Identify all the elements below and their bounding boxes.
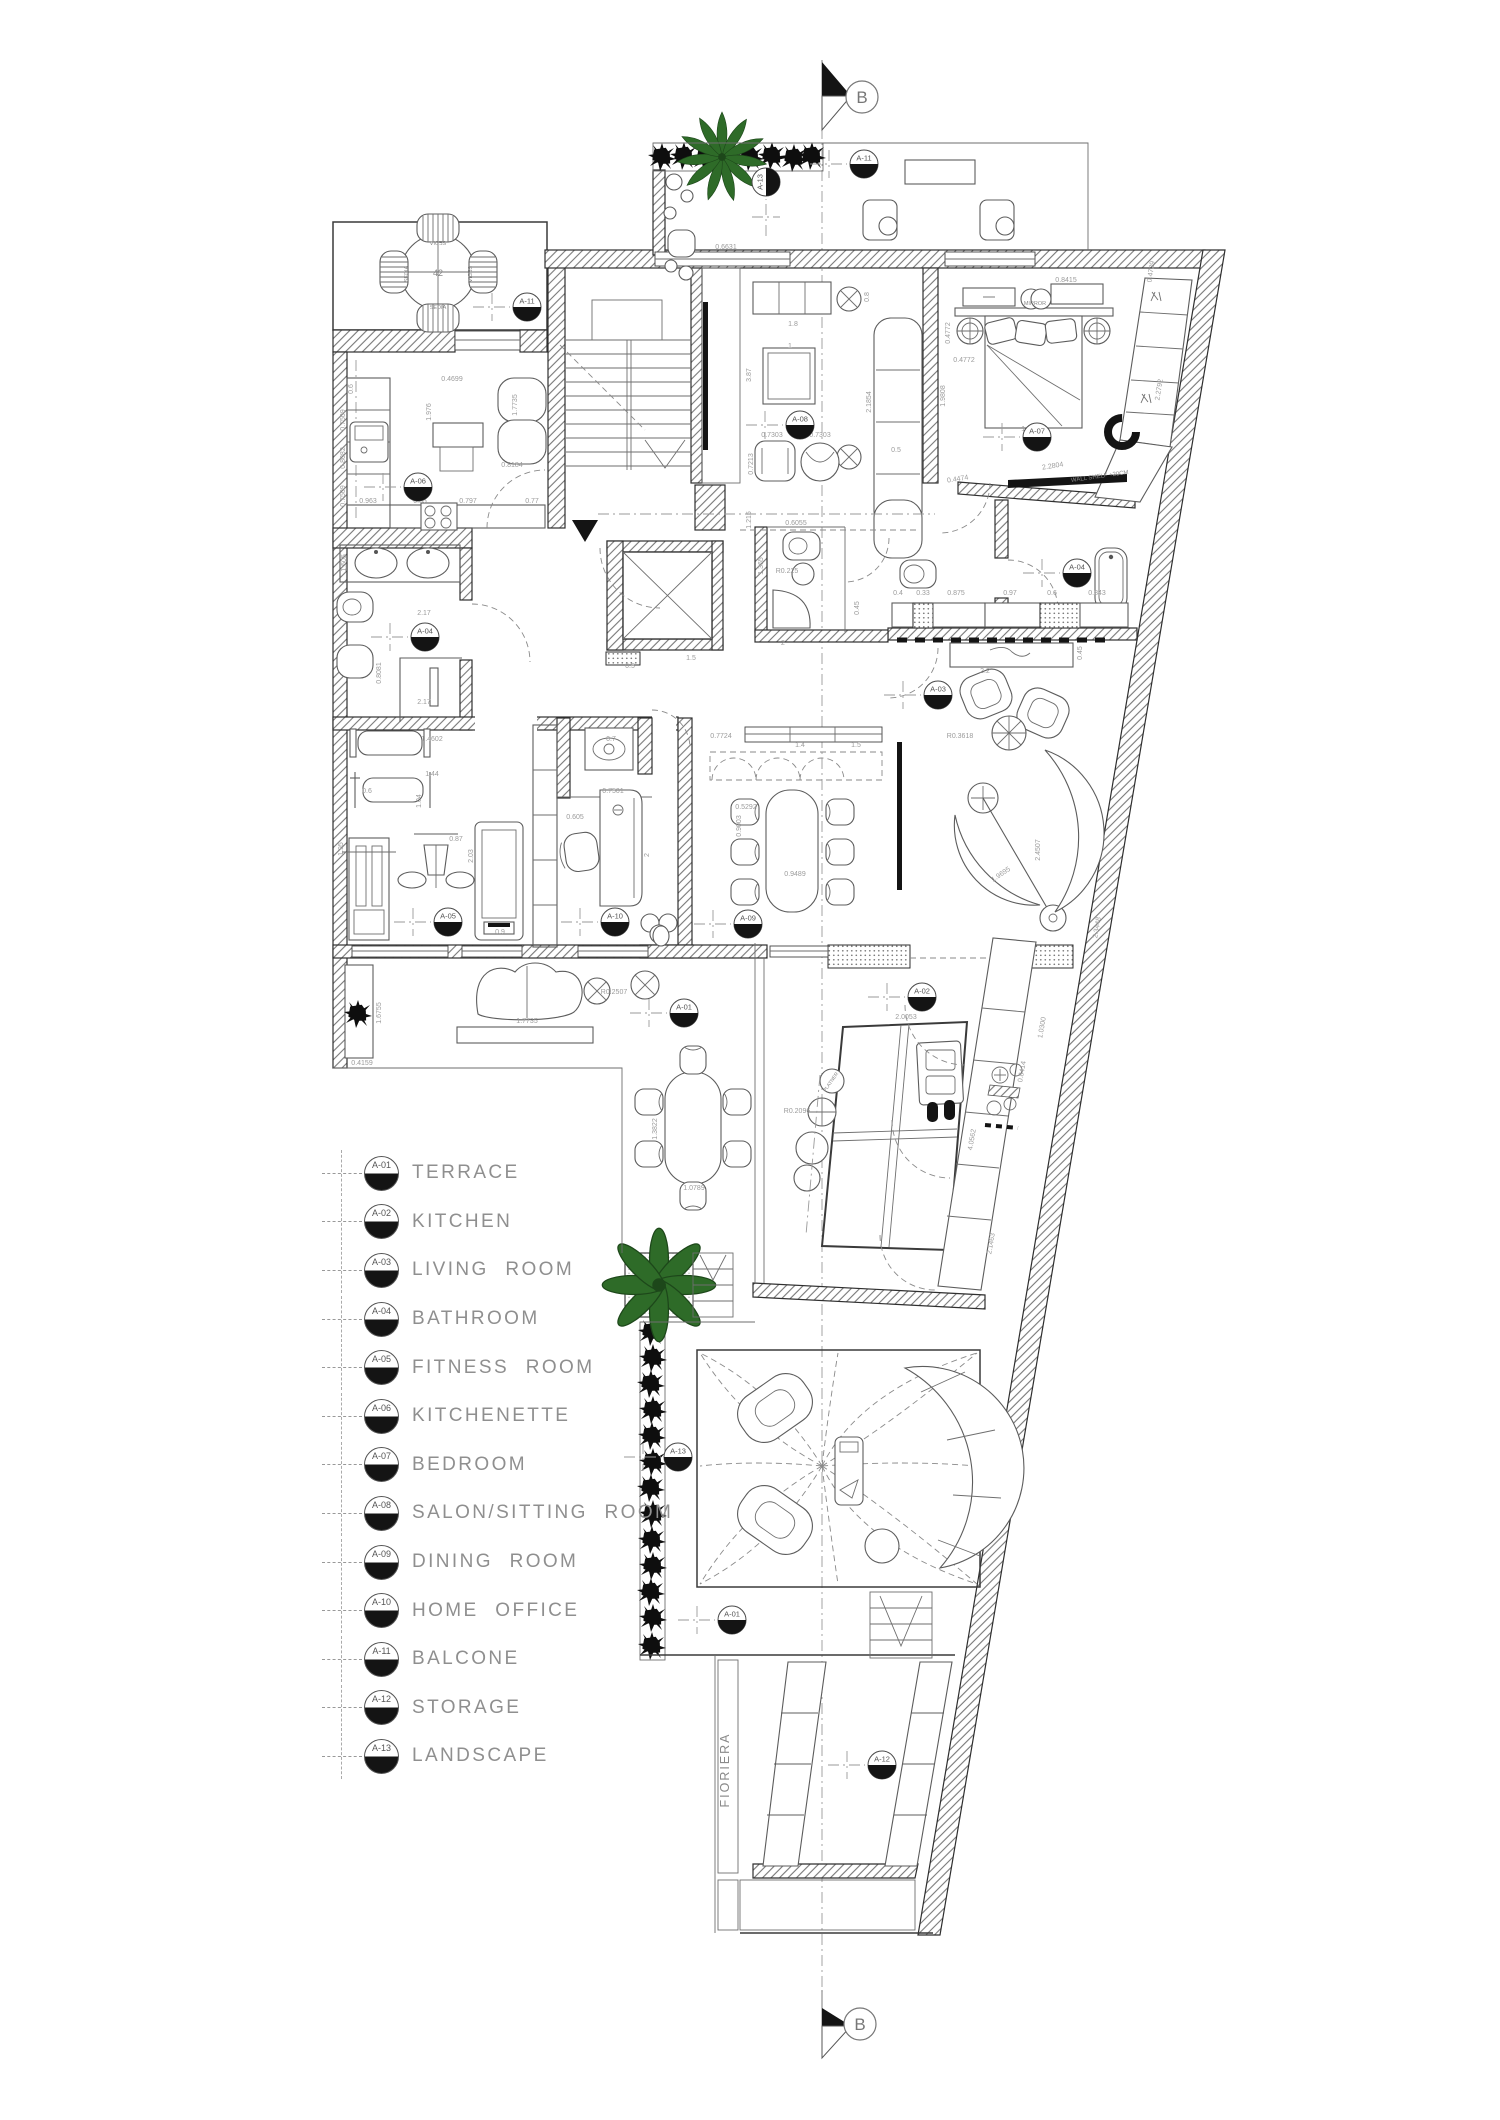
legend-item: A-12 STORAGE (322, 1684, 673, 1733)
dimension-label: 1.5 (686, 655, 696, 662)
legend-label: SALON/SITTING ROOM (412, 1502, 673, 1524)
legend-marker-icon: A-12 (364, 1690, 399, 1725)
legend-dash-icon (322, 1610, 362, 1611)
salon-sofa (874, 318, 922, 558)
legend-item: A-01 TERRACE (322, 1149, 673, 1198)
storage-cabinet (763, 1662, 826, 1866)
side-table (837, 445, 861, 469)
room-marker: A-01 (630, 999, 698, 1027)
entry-arrow-icon (572, 520, 598, 542)
stairs-terrace (870, 1592, 932, 1658)
dimension-label: 0.45 (1077, 646, 1084, 660)
dimension-label: 0.4159 (351, 1060, 373, 1067)
legend-label: HOME OFFICE (412, 1600, 579, 1622)
room-marker: A-10 (561, 908, 629, 936)
dimension-label: 0.6 (1047, 590, 1057, 597)
legend-item: A-13 LANDSCAPE (322, 1732, 673, 1781)
legend-item: A-11 BALCONE (322, 1635, 673, 1684)
terrace-chair (980, 200, 1014, 240)
room-marker-id: A-13 (756, 174, 765, 190)
dimension-label: 2.03 (468, 849, 475, 863)
toilet-icon (337, 645, 373, 678)
dimension-label: 0.9003 (736, 815, 743, 837)
room-marker-id: A-10 (607, 912, 623, 921)
dimension-label: 0.7501 (602, 788, 624, 795)
dimension-label: 0.8 (864, 292, 871, 302)
legend-tick-icon (341, 1685, 342, 1731)
dimension-label: 1.3822 (652, 1118, 659, 1140)
legend-marker-id: A-09 (365, 1549, 398, 1559)
legend-label: FITNESS ROOM (412, 1357, 594, 1379)
stove-icon (421, 503, 457, 530)
armchair (755, 441, 795, 481)
shower (400, 658, 462, 722)
legend-marker-id: A-05 (365, 1354, 398, 1364)
legend-dash-icon (322, 1562, 362, 1563)
room-marker-id: A-01 (676, 1003, 692, 1012)
legend-item: A-10 HOME OFFICE (322, 1586, 673, 1635)
legend-tick-icon (341, 1247, 342, 1293)
plan-text: 42 (433, 268, 443, 278)
room-marker: A-04 (371, 623, 439, 651)
dimension-label: 1.7735 (516, 1018, 538, 1025)
dimension-label: 0.8082 (340, 447, 347, 469)
dimension-label: 1.04 (416, 794, 423, 808)
pouf (631, 971, 659, 999)
legend-dash-icon (322, 1367, 362, 1368)
legend-marker-icon: A-13 (364, 1739, 399, 1774)
dimension-label: 0.7509 (340, 409, 347, 431)
legend-tick-icon (341, 1587, 342, 1633)
dimension-label: 2.2 (980, 668, 990, 675)
dimension-label: 1.0789 (683, 1185, 705, 1192)
legend-marker-id: A-10 (365, 1597, 398, 1607)
dimension-label: 0.45 (854, 601, 861, 615)
vanity-cabinets (892, 603, 1128, 628)
legend-tick-icon (341, 1490, 342, 1536)
dimension-label: 0.797 (459, 498, 477, 505)
room-marker-id: A-11 (856, 154, 871, 163)
dimension-label: 0.875 (947, 590, 965, 597)
flower-stool (641, 914, 677, 946)
legend-dash-icon (322, 1464, 362, 1465)
legend-item: A-02 KITCHEN (322, 1198, 673, 1247)
dimension-label: 2.1854 (866, 391, 873, 413)
legend-marker-id: A-02 (365, 1208, 398, 1218)
dimension-label: 0.8081 (376, 662, 383, 684)
room-marker: A-12 (828, 1751, 896, 1779)
legend-marker-icon: A-11 (364, 1642, 399, 1677)
stairs-small (693, 1253, 733, 1317)
legend-marker-icon: A-07 (364, 1447, 399, 1482)
legend-dash-icon (322, 1659, 362, 1660)
dimension-label: 1.215 (746, 511, 753, 529)
terrace-planter (344, 965, 373, 1058)
side-table (837, 287, 861, 311)
dimension-label: 1.4602 (421, 736, 443, 743)
room-marker: A-13 (752, 168, 780, 236)
powder-room (773, 532, 889, 628)
dimension-label: R0.3618 (947, 733, 974, 740)
section-label-top: B (856, 88, 867, 107)
room-marker-id: A-04 (417, 627, 433, 636)
bathtub-icon (1095, 548, 1127, 610)
dimension-label: 1.976 (426, 403, 433, 421)
legend-dash-icon (322, 1270, 362, 1271)
legend-label: BEDROOM (412, 1454, 527, 1476)
legend-label: LIVING ROOM (412, 1259, 574, 1281)
legend-dash-icon (322, 1513, 362, 1514)
toilet-icon (900, 560, 936, 588)
room-marker: A-02 (868, 983, 936, 1011)
legend-item: A-07 BEDROOM (322, 1441, 673, 1490)
legend-item: A-04 BATHROOM (322, 1295, 673, 1344)
plan-text: SEDIA (429, 239, 446, 245)
legend-marker-icon: A-04 (364, 1302, 399, 1337)
storage (715, 1655, 952, 1933)
dimension-label: 0.8415 (1055, 277, 1077, 284)
legend-label: STORAGE (412, 1697, 521, 1719)
dimension-label: 2.0053 (895, 1014, 917, 1021)
room-marker-id: A-11 (519, 297, 534, 306)
legend-label: BALCONE (412, 1648, 520, 1670)
plan-text: SEDIA (466, 266, 472, 283)
dimension-label: 2 (644, 853, 651, 857)
legend-dash-icon (322, 1221, 362, 1222)
legend-marker-icon: A-03 (364, 1253, 399, 1288)
dimension-label: 0.7724 (710, 733, 732, 740)
legend-tick-icon (341, 1296, 342, 1342)
legend-marker-icon: A-05 (364, 1350, 399, 1385)
room-marker: A-05 (394, 908, 462, 936)
desk (600, 790, 642, 906)
dimension-label: 0.33 (916, 590, 930, 597)
dimension-label: 1.9695 (990, 866, 1012, 884)
legend-item: A-05 FITNESS ROOM (322, 1343, 673, 1392)
weight-bench (350, 729, 430, 757)
dimension-label: 0.5292 (735, 804, 757, 811)
legend-marker-icon: A-08 (364, 1496, 399, 1531)
room-marker-id: A-08 (792, 415, 808, 424)
plan-text: SEDIA (404, 265, 410, 282)
legend-item: A-09 DINING ROOM (322, 1538, 673, 1587)
floor-plan-drawing: B B (0, 0, 1500, 2120)
dimension-label: 0.4772 (953, 357, 975, 364)
dimension-label: R0.225 (776, 568, 799, 575)
dimension-label: 2.2804 (1042, 461, 1064, 471)
kitchen-island (822, 1022, 967, 1250)
legend-dash-icon (322, 1707, 362, 1708)
sink-icon (350, 422, 388, 462)
stairs-main (560, 300, 691, 470)
dimension-label: 0.9489 (784, 871, 806, 878)
sink-icon (355, 548, 449, 578)
dimension-label: 0.6 (362, 788, 372, 795)
legend-marker-id: A-13 (365, 1743, 398, 1753)
bathroom-2 (900, 548, 1127, 610)
tv-wall (702, 268, 740, 483)
legend-tick-icon (341, 1393, 342, 1439)
legend-marker-id: A-11 (365, 1646, 398, 1656)
toilet-icon (783, 532, 820, 560)
legend-tick-icon (341, 1539, 342, 1585)
legend-marker-icon: A-02 (364, 1204, 399, 1239)
legend-label: KITCHEN (412, 1211, 512, 1233)
legend-marker-id: A-07 (365, 1451, 398, 1461)
coffee-table (433, 423, 483, 447)
terrace-canopy (640, 1322, 1024, 1658)
dimension-label: 0.5 (891, 447, 901, 454)
section-flag-top: B (822, 60, 878, 130)
legend-dash-icon (322, 1173, 362, 1174)
section-label-bottom: B (854, 2015, 865, 2034)
legend-item: A-03 LIVING ROOM (322, 1246, 673, 1295)
console-table (835, 1437, 863, 1505)
room-marker-id: A-02 (914, 987, 930, 996)
legend-marker-icon: A-06 (364, 1399, 399, 1434)
legend-marker-id: A-08 (365, 1500, 398, 1510)
legend-marker-id: A-03 (365, 1257, 398, 1267)
legend-label: BATHROOM (412, 1308, 540, 1330)
pouf (865, 1529, 899, 1563)
dimension-label: 1.505 (341, 554, 348, 572)
dimension-label: R0.2096 (784, 1108, 811, 1115)
lounge-chair (729, 1477, 821, 1563)
legend-marker-icon: A-01 (364, 1156, 399, 1191)
dimension-label: 1 (788, 343, 792, 350)
room-marker-id: A-05 (440, 912, 456, 921)
arc-floor-lamp (968, 783, 1066, 931)
plan-text: SEDIA (430, 305, 447, 311)
legend-item: A-06 KITCHENETTE (322, 1392, 673, 1441)
bed (984, 316, 1082, 428)
dimension-label: 1.5 (851, 742, 861, 749)
dimension-label: R0.2507 (601, 989, 628, 996)
legend-item: A-08 SALON/SITTING ROOM (322, 1489, 673, 1538)
dimension-label: 0.7509 (340, 485, 347, 507)
room-marker: A-04 (1023, 559, 1091, 587)
legend-dash-icon (322, 1756, 362, 1757)
dimension-label: 0.7 (606, 736, 616, 743)
legend-tick-icon (341, 1442, 342, 1488)
room-marker: A-09 (694, 910, 762, 938)
legend-tick-icon (341, 1199, 342, 1245)
dimension-label: 1.44 (425, 771, 439, 778)
room-marker-id: A-12 (874, 1755, 890, 1764)
outdoor-sofa (477, 963, 583, 1020)
treadmill (475, 822, 523, 940)
elevator (623, 552, 712, 639)
dimension-label: 0.963 (359, 498, 377, 505)
room-marker-id: A-04 (1069, 563, 1085, 572)
legend-label: DINING ROOM (412, 1551, 578, 1573)
legend-marker-id: A-01 (365, 1160, 398, 1170)
bidet-icon (337, 592, 373, 622)
legend-marker-id: A-12 (365, 1694, 398, 1704)
section-flag-bottom: B (822, 1990, 876, 2058)
dimension-label: 0.6 (348, 384, 355, 394)
room-marker-id: A-03 (930, 685, 946, 694)
dining-table (766, 790, 818, 912)
dimension-label: 3.87 (746, 368, 753, 382)
plan-text: MIRROR (1024, 301, 1046, 307)
kitchenette-sofa (498, 378, 546, 464)
room-marker: A-01 (678, 1606, 746, 1634)
dimension-label: 2.4507 (1035, 839, 1042, 861)
dimension-label: 1.7735 (512, 394, 519, 416)
legend-tick-icon (341, 1733, 342, 1779)
kitchenette (347, 360, 546, 530)
terrace-chair (863, 200, 897, 240)
terrace-table (905, 160, 975, 184)
dimension-label: 0.77 (525, 498, 539, 505)
sideboard (950, 643, 1073, 667)
dimension-label: 2.17 (417, 610, 431, 617)
legend-label: TERRACE (412, 1162, 520, 1184)
dimension-label: 1.8 (788, 321, 798, 328)
dimension-label: 1.6755 (376, 1002, 383, 1024)
dimension-label: 0.87 (449, 836, 463, 843)
dimension-label: 0.8184 (501, 462, 523, 469)
office-chair (558, 831, 601, 874)
nightstand (1084, 318, 1110, 344)
living-room (888, 603, 1128, 931)
dimension-label: 1.0300 (1037, 1016, 1048, 1038)
dimension-label: 0.4 (893, 590, 903, 597)
legend-label: KITCHENETTE (412, 1405, 570, 1427)
legend: A-01 TERRACE A-02 KITCHEN A-03 LIVING RO… (322, 1149, 673, 1781)
plan-text: FIORIERA (718, 1732, 732, 1807)
segment-table (992, 716, 1026, 750)
tall-cabinet (533, 725, 557, 947)
room-marker-id: A-01 (724, 1610, 740, 1619)
room-marker: A-11 (810, 150, 878, 178)
dimension-label: 0.605 (566, 814, 584, 821)
legend-marker-icon: A-09 (364, 1545, 399, 1580)
legend-label: LANDSCAPE (412, 1745, 549, 1767)
dimension-label: 0.7303 (761, 432, 783, 439)
salon (740, 282, 922, 558)
curved-sofa (954, 815, 1040, 905)
legend-marker-id: A-04 (365, 1306, 398, 1316)
nightstand (957, 318, 983, 344)
dimension-label: 1.9808 (940, 385, 947, 407)
room-marker: A-06 (364, 473, 432, 501)
multi-gym (342, 838, 396, 940)
legend-marker-id: A-06 (365, 1403, 398, 1413)
curved-chair (801, 443, 839, 481)
dimension-label: 0.4699 (441, 376, 463, 383)
dimension-label: 0.7303 (809, 432, 831, 439)
dimension-label: 0.97 (1003, 590, 1017, 597)
room-marker: A-03 (884, 681, 952, 709)
dimension-label: 1.4 (795, 742, 805, 749)
room-marker-id: A-06 (410, 477, 426, 486)
room-marker-id: A-09 (740, 914, 756, 923)
legend-dash-icon (322, 1319, 362, 1320)
dimension-label: 2 (781, 640, 785, 647)
room-marker: A-11 (473, 293, 541, 321)
legend-tick-icon (341, 1344, 342, 1390)
dimension-label: 1.365 (758, 557, 765, 575)
lounge-chair (729, 1365, 821, 1451)
dimension-label: 0.843 (1088, 590, 1106, 597)
dimension-label: 0.6055 (785, 520, 807, 527)
dimension-label: 0.5 (625, 663, 635, 670)
dimension-label: 0.9 (495, 929, 505, 936)
legend-dash-icon (322, 1416, 362, 1417)
room-marker-id: A-07 (1029, 427, 1045, 436)
legend-tick-icon (341, 1150, 342, 1196)
legend-marker-icon: A-10 (364, 1593, 399, 1628)
dimension-label: 0.7213 (748, 453, 755, 475)
dimension-label: 0.8414 (1017, 1060, 1028, 1082)
legend-tick-icon (341, 1636, 342, 1682)
dimension-label: 0.6631 (715, 244, 737, 251)
dimension-label: 1.95 (338, 842, 345, 856)
dimension-label: 2.17 (417, 699, 431, 706)
dimension-label: 0.4772 (945, 322, 952, 344)
floor-plan-page: { "section": { "label": "B" }, "legend":… (0, 0, 1500, 2120)
